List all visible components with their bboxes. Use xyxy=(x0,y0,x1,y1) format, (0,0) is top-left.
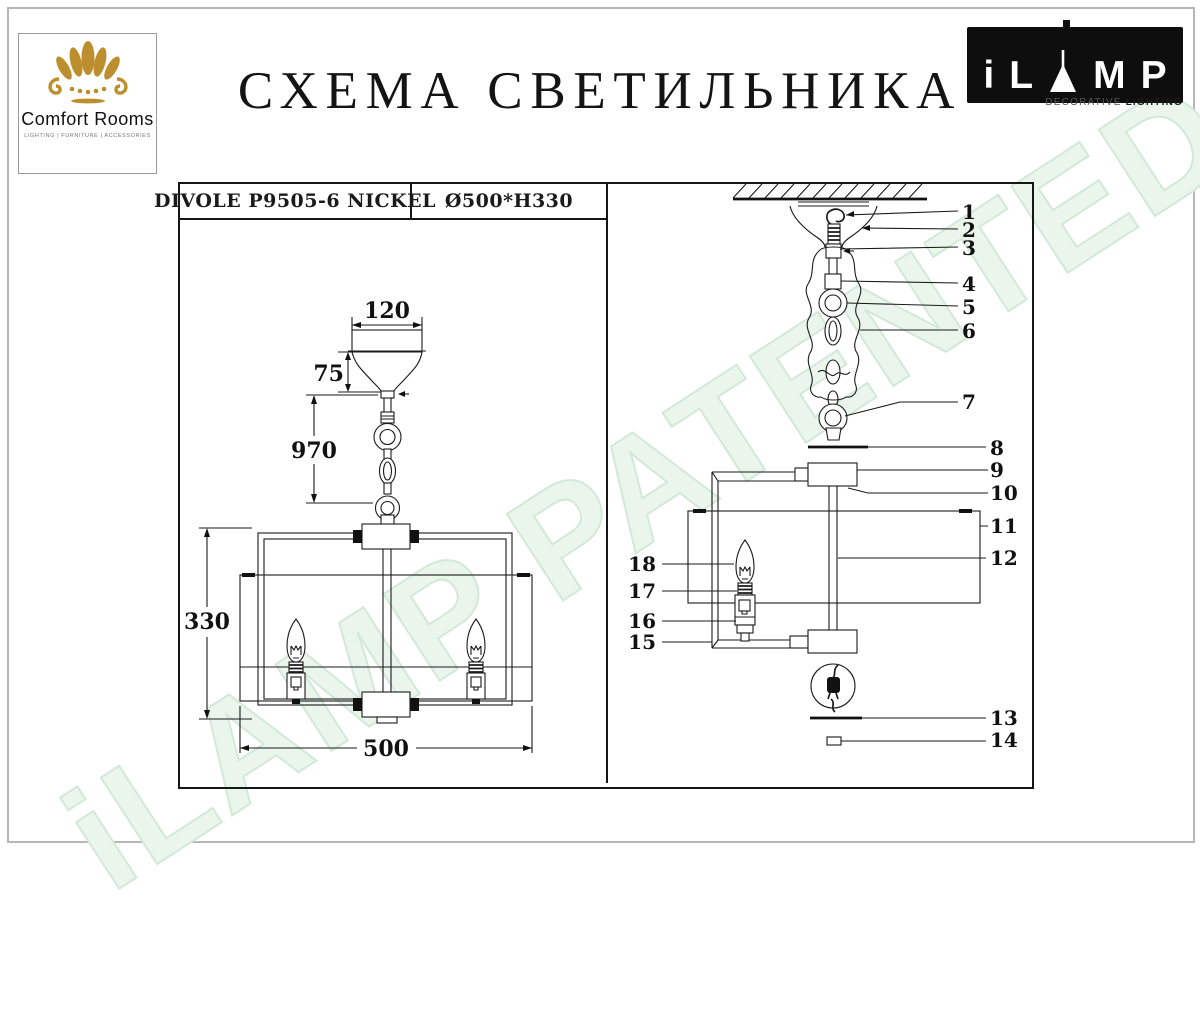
spec-table: DIVOLE P9505-6 NICKEL Ø500*H330 xyxy=(180,184,606,220)
page-title: СХЕМА СВЕТИЛЬНИКА xyxy=(200,60,1000,122)
ilamp-letter: P xyxy=(1141,59,1167,92)
hanging-lamp-icon xyxy=(1048,50,1078,93)
ilamp-letter: M xyxy=(1093,59,1126,92)
lamp-cord-stub xyxy=(1063,20,1070,28)
spec-model-cell: DIVOLE P9505-6 NICKEL xyxy=(180,184,412,218)
crown-icon xyxy=(43,40,133,106)
brand-tagline: LIGHTING | FURNITURE | ACCESSORIES xyxy=(19,133,156,139)
panel-divider xyxy=(606,184,608,783)
brand-name: Comfort Rooms xyxy=(19,109,156,130)
drawing-frame: DIVOLE P9505-6 NICKEL Ø500*H330 xyxy=(178,182,1034,789)
ilamp-tagline-lighting: LIGHTING xyxy=(1126,97,1183,108)
ilamp-tagline: DECORATIVE LIGHTING xyxy=(965,97,1183,108)
ilamp-logo: i L M P xyxy=(967,27,1183,103)
ilamp-tagline-decorative: DECORATIVE xyxy=(1045,97,1125,108)
ilamp-letter: i xyxy=(983,59,994,92)
spec-size-cell: Ø500*H330 xyxy=(412,184,606,218)
comfort-rooms-logo: Comfort Rooms LIGHTING | FURNITURE | ACC… xyxy=(18,33,157,174)
ilamp-letter: L xyxy=(1009,59,1033,92)
